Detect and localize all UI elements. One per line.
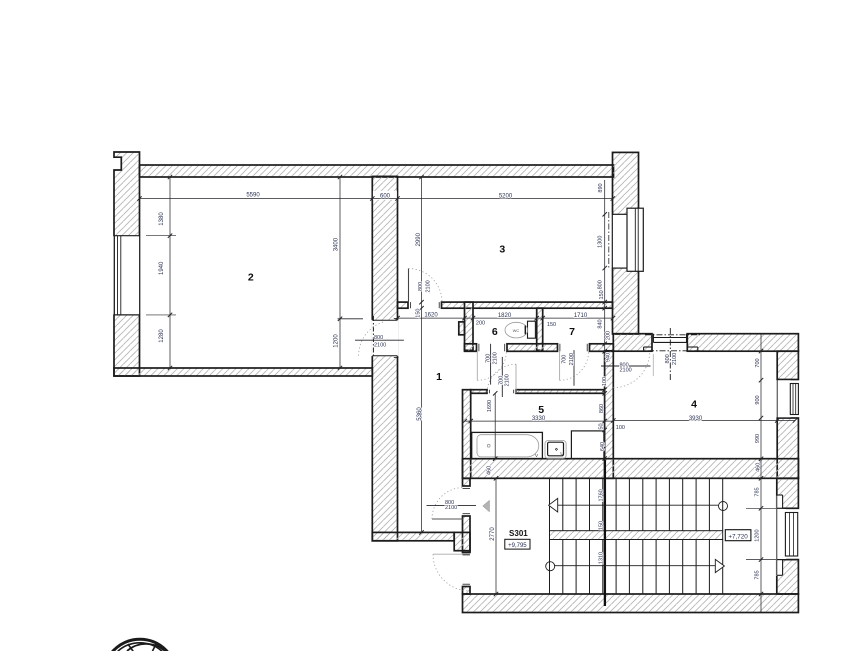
svg-text:U: U [560,451,563,456]
svg-text:940: 940 [606,353,612,362]
svg-text:2100: 2100 [672,353,678,365]
svg-text:2100: 2100 [445,505,457,511]
svg-text:+7,720: +7,720 [728,533,748,540]
svg-text:785: 785 [755,487,761,496]
svg-text:+9,795: +9,795 [508,543,527,549]
svg-text:2100: 2100 [426,280,432,292]
svg-text:900: 900 [755,395,761,404]
svg-text:150: 150 [415,309,421,318]
svg-text:100: 100 [602,377,608,386]
svg-text:WC: WC [513,328,520,333]
svg-text:700: 700 [486,354,492,363]
svg-text:5590: 5590 [246,193,260,199]
svg-text:1760: 1760 [598,489,604,501]
svg-text:S301: S301 [509,529,528,538]
svg-text:1620: 1620 [424,313,438,319]
svg-text:1200: 1200 [333,334,339,348]
svg-text:2100: 2100 [569,353,575,365]
svg-text:200: 200 [605,331,611,340]
svg-text:460: 460 [755,463,761,472]
svg-text:1310: 1310 [598,552,604,564]
svg-text:1280: 1280 [159,329,165,343]
svg-text:1940: 1940 [159,261,165,275]
svg-text:1300: 1300 [598,236,604,248]
svg-text:800: 800 [374,335,383,341]
svg-text:800: 800 [418,282,424,291]
svg-text:3330: 3330 [532,416,546,422]
svg-text:700: 700 [562,355,568,364]
svg-text:460: 460 [486,466,492,475]
svg-text:150: 150 [598,521,604,530]
svg-text:1690: 1690 [487,400,493,412]
svg-text:1380: 1380 [159,212,165,226]
svg-text:840: 840 [598,319,604,328]
svg-text:4: 4 [691,399,697,411]
svg-text:640: 640 [600,442,606,451]
svg-text:785: 785 [755,570,761,579]
svg-text:200: 200 [476,321,485,327]
svg-text:2100: 2100 [492,352,498,364]
svg-text:700: 700 [755,358,761,367]
svg-text:2100: 2100 [505,374,511,386]
svg-text:5360: 5360 [417,407,423,421]
svg-text:700: 700 [498,376,504,385]
svg-text:150: 150 [547,322,556,328]
svg-text:2770: 2770 [490,527,496,541]
svg-text:5: 5 [538,404,544,416]
svg-text:2990: 2990 [416,232,422,246]
svg-text:3: 3 [499,243,505,255]
svg-text:5200: 5200 [499,193,513,199]
svg-text:3400: 3400 [333,237,339,251]
svg-text:800: 800 [665,354,671,363]
svg-text:600: 600 [380,193,391,199]
svg-text:1820: 1820 [498,313,512,319]
svg-text:7: 7 [569,326,575,338]
svg-text:100: 100 [616,425,625,431]
svg-text:990: 990 [755,434,761,443]
svg-text:800: 800 [598,280,604,289]
svg-text:3930: 3930 [689,416,703,422]
svg-text:50: 50 [599,423,605,429]
svg-text:2100: 2100 [374,343,386,349]
svg-text:2100: 2100 [620,367,632,373]
svg-text:1: 1 [436,371,442,383]
svg-text:1710: 1710 [574,313,588,319]
svg-text:2: 2 [248,272,254,284]
svg-text:1200: 1200 [755,529,761,541]
svg-text:890: 890 [598,183,604,192]
svg-text:860: 860 [599,404,605,413]
svg-text:150: 150 [599,290,605,299]
svg-text:6: 6 [492,326,498,338]
